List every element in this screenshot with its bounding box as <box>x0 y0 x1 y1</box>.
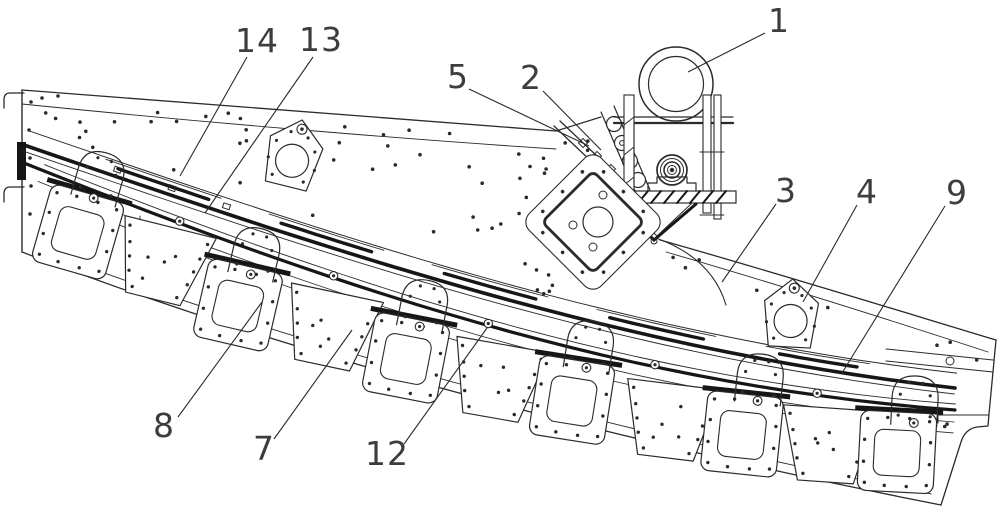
pentagon-mount-plate <box>260 113 329 192</box>
bolt-dot <box>935 343 939 347</box>
bolt-dot <box>518 177 522 181</box>
bolt-dot <box>548 290 552 294</box>
bolt-dot <box>697 258 701 262</box>
rail-clip <box>222 203 230 210</box>
bolt-dot <box>544 167 548 171</box>
bolt-dot <box>245 139 249 143</box>
bolt-dot <box>204 115 208 119</box>
bolt-dot <box>586 149 590 153</box>
bolt-dot <box>684 266 688 270</box>
patent-line-drawing: 12345789121314 <box>0 0 1000 508</box>
callout-14: 14 <box>180 21 279 176</box>
bolt-dot <box>29 184 33 188</box>
bolt-dot <box>78 120 82 124</box>
bolt-dot <box>943 425 947 429</box>
bolt-dot <box>542 292 546 296</box>
bolt-dot <box>338 141 342 145</box>
bolt-dot <box>265 235 269 239</box>
bolt-dot <box>371 167 375 171</box>
callout-1-label: 1 <box>768 1 790 40</box>
callout-7-label: 7 <box>253 429 275 468</box>
figure-canvas: 12345789121314 <box>0 0 1000 508</box>
callout-4-leader <box>803 205 857 302</box>
square-access-plate <box>25 179 132 282</box>
bolt-dot <box>40 96 44 100</box>
bolt-dot <box>598 327 602 331</box>
bolt-dot <box>535 268 539 272</box>
callout-14-label: 14 <box>235 21 279 60</box>
callout-4: 4 <box>803 172 878 302</box>
bolt-dot <box>394 163 398 167</box>
diamond-access-plate <box>521 150 665 294</box>
bolt-dot <box>227 111 231 115</box>
bolt-dot <box>418 284 422 288</box>
bolt-dot <box>29 100 33 104</box>
bolt-dot <box>448 132 452 136</box>
bolt-dot <box>84 130 88 134</box>
bolt-dot <box>54 117 58 121</box>
bolt-dot <box>490 226 494 230</box>
diamond-outer <box>521 150 665 294</box>
bolt-dot <box>542 157 546 161</box>
bolt-dot <box>432 287 436 291</box>
bolt-dot <box>44 111 48 115</box>
bolt-dot <box>948 340 952 344</box>
bolt-dot <box>480 181 484 185</box>
callout-9-leader <box>842 206 945 373</box>
bolt-dot <box>774 373 778 377</box>
motor-body-circle <box>639 47 713 121</box>
bolt-dot <box>311 214 315 218</box>
callout-13-label: 13 <box>299 20 343 59</box>
bolt-dot <box>547 273 551 277</box>
square-access-plate <box>851 408 943 494</box>
bolt-dot <box>91 146 95 150</box>
bolt-dot <box>109 160 113 164</box>
bolt-dot <box>172 168 176 172</box>
bolt-dot <box>536 288 540 292</box>
rail-pin-center <box>816 392 819 395</box>
bolt-dot <box>438 300 442 304</box>
bolt-dot <box>467 165 471 169</box>
bolt-dot <box>382 133 386 137</box>
screen-segment-outline <box>432 265 548 297</box>
callout-8-label: 8 <box>153 406 175 445</box>
rail-end-pin <box>946 357 954 365</box>
rail-anchor-stub <box>17 142 26 180</box>
bolt-dot <box>238 141 242 145</box>
bolt-dot <box>543 171 547 175</box>
callout-12-label: 12 <box>365 434 409 473</box>
bolt-dot <box>604 341 608 345</box>
bolt-dot <box>386 144 390 148</box>
callout-2-label: 2 <box>520 58 542 97</box>
plate-outline <box>528 355 616 446</box>
callout-4-label: 4 <box>856 172 878 211</box>
bolt-dot <box>432 230 436 234</box>
top-edge-left <box>22 90 556 131</box>
top-edge-right-inner <box>666 252 988 352</box>
bolt-dot <box>96 156 100 160</box>
rail-pin-center <box>653 363 656 366</box>
bolt-dot <box>251 232 255 236</box>
callout-5-label: 5 <box>447 57 469 96</box>
bolt-dot <box>78 136 82 140</box>
bolt-dot <box>27 128 31 132</box>
callout-3-label: 3 <box>775 171 797 210</box>
callout-3: 3 <box>722 171 797 282</box>
bolt-dot <box>586 139 590 143</box>
bolt-dot <box>149 120 153 124</box>
callout-5: 5 <box>447 57 589 146</box>
right-step-line <box>938 415 989 423</box>
plate-outline <box>857 410 937 494</box>
vibration-motor-assembly <box>521 47 736 294</box>
bolt-dot <box>244 128 248 132</box>
screen-segment <box>118 169 209 200</box>
callout-2: 2 <box>520 58 601 150</box>
bolt-dot <box>476 228 480 232</box>
bolt-dot <box>56 94 60 98</box>
rail-pin-center <box>178 220 181 223</box>
callout-14-leader <box>180 57 247 176</box>
callout-1-leader <box>688 33 765 72</box>
bolt-dot <box>899 393 902 396</box>
bolt-dot <box>574 336 578 340</box>
bolt-dot <box>755 289 759 293</box>
bolt-dot <box>418 153 422 157</box>
bolt-dot <box>517 152 521 156</box>
plate-outline <box>361 311 451 404</box>
bolt-dot <box>156 111 160 115</box>
bolt-dot <box>744 370 748 374</box>
square-access-plate <box>694 388 790 479</box>
bolt-dot <box>826 306 830 310</box>
plate-outline <box>700 390 784 478</box>
rail-pin-center <box>332 274 335 277</box>
bolt-dot <box>408 294 412 298</box>
bolt-dot <box>929 394 932 397</box>
bolt-dot <box>28 212 32 216</box>
bolt-dot <box>238 181 242 185</box>
bolt-dot <box>407 128 411 132</box>
bolt-dot <box>523 262 527 266</box>
bolt-dot <box>113 120 117 124</box>
bolt-dot <box>239 117 243 121</box>
callout-9-label: 9 <box>946 173 968 212</box>
bolt-dot <box>28 156 32 160</box>
discharge-chute-arc <box>656 238 726 305</box>
bolt-dot <box>499 222 503 226</box>
bolt-dot <box>270 249 274 253</box>
callout-5-leader <box>469 89 589 146</box>
bolt-dot <box>551 284 555 288</box>
callout-2-leader <box>543 91 601 150</box>
bolt-dot <box>528 165 532 169</box>
bearing-shaft <box>670 168 674 172</box>
bolt-dot <box>471 215 475 219</box>
screen-segment-outline <box>597 310 716 337</box>
bolt-dot <box>525 196 529 200</box>
left-hook-upper <box>4 93 24 108</box>
pentagon-outline <box>260 113 329 192</box>
bolt-dot <box>175 120 179 124</box>
top-edge-right <box>660 240 996 340</box>
bolt-dot <box>671 256 675 260</box>
rail-pin-center <box>487 322 490 325</box>
bolt-dot <box>975 358 979 362</box>
left-hook-lower <box>4 187 24 202</box>
bolt-dot <box>332 158 336 162</box>
bolt-dot <box>563 141 567 145</box>
bolt-dot <box>343 125 347 129</box>
bolt-dot <box>517 212 521 216</box>
callout-3-leader <box>722 204 776 282</box>
